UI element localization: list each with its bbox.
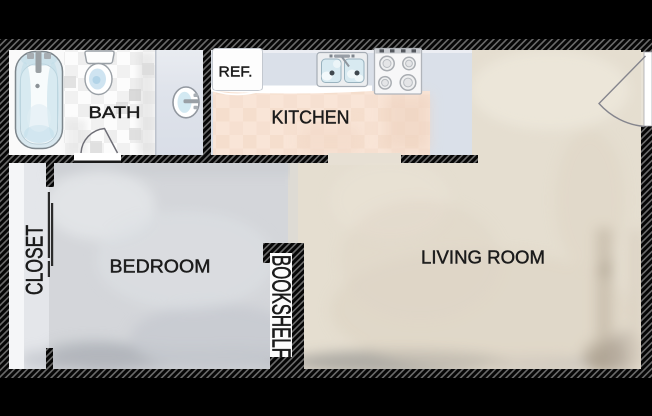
- svg-text:BEDROOM: BEDROOM: [110, 256, 211, 277]
- svg-text:BOOKSHELF: BOOKSHELF: [267, 255, 296, 358]
- svg-text:BATH: BATH: [89, 103, 141, 122]
- svg-text:LIVING ROOM: LIVING ROOM: [421, 247, 545, 268]
- svg-text:CLOSET: CLOSET: [22, 225, 49, 295]
- svg-text:KITCHEN: KITCHEN: [272, 107, 350, 128]
- svg-text:REF.: REF.: [219, 64, 253, 81]
